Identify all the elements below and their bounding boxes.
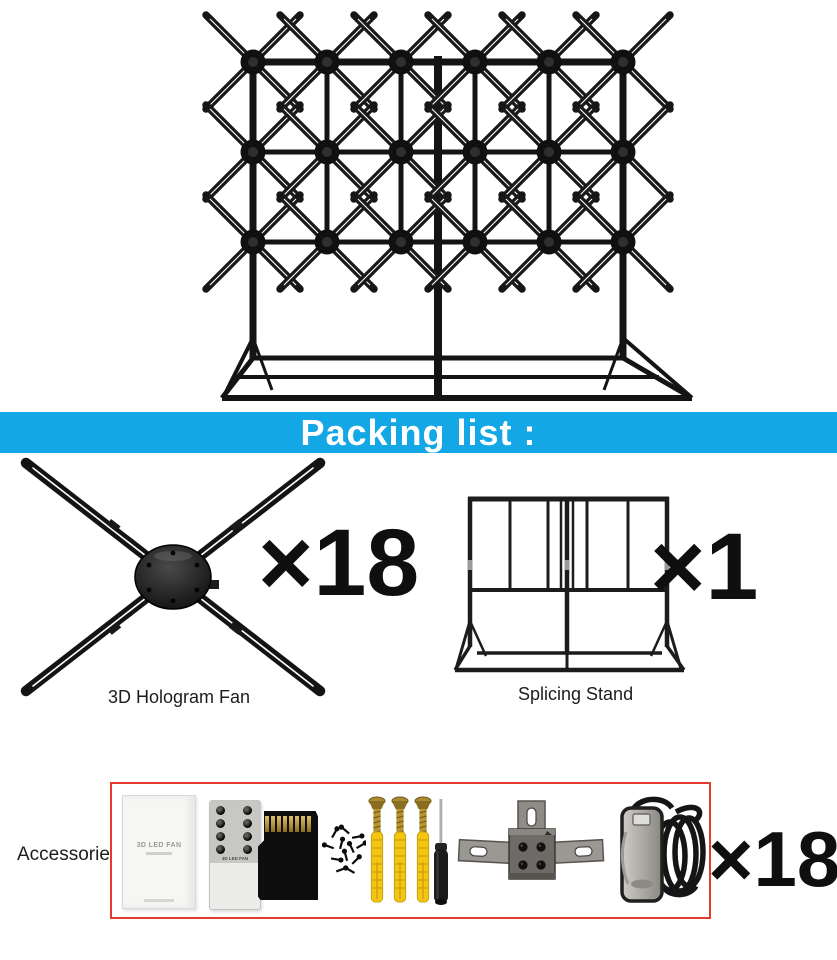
accessories-label: Accessories: xyxy=(17,844,125,867)
manual-model-line xyxy=(146,852,172,855)
screwdriver-icon xyxy=(430,798,452,906)
remote-button xyxy=(243,819,252,828)
remote-button xyxy=(243,806,252,815)
accessories-quantity: ×18 xyxy=(708,820,837,898)
power-adapter-icon xyxy=(606,792,713,913)
manual-footer-line xyxy=(144,899,174,902)
remote-title: 3D LED FAN xyxy=(216,857,254,862)
stand-caption: Splicing Stand xyxy=(518,684,633,706)
expansion-anchors-icon xyxy=(364,794,436,908)
fan-quantity: ×18 xyxy=(258,516,419,611)
screw-pack-icon xyxy=(322,824,366,878)
remote-button xyxy=(216,819,225,828)
user-manual-box-icon: 3D LED FAN xyxy=(122,795,196,909)
accessories-box: 3D LED FAN 3D LED FAN xyxy=(110,782,711,919)
remote-button xyxy=(216,806,225,815)
remote-button xyxy=(243,832,252,841)
stand-joint-collars xyxy=(468,560,670,570)
remote-button-panel: 3D LED FAN xyxy=(210,801,260,863)
product-packing-list-infographic: Packing list : ×18 xyxy=(0,0,837,960)
remote-control-icon: 3D LED FAN xyxy=(209,800,261,910)
sd-card-pins xyxy=(258,811,318,832)
mounting-bracket-icon xyxy=(457,799,605,905)
remote-button xyxy=(216,832,225,841)
sd-card-icon xyxy=(258,811,318,900)
fan-caption: 3D Hologram Fan xyxy=(108,687,250,709)
hologram-fan-wall-photo xyxy=(0,0,837,410)
packing-list-banner: Packing list : xyxy=(0,412,837,453)
remote-button xyxy=(243,845,252,854)
manual-title: 3D LED FAN xyxy=(137,842,182,849)
packing-list-title: Packing list : xyxy=(300,415,536,451)
remote-button xyxy=(216,845,225,854)
stand-quantity: ×1 xyxy=(650,520,758,615)
